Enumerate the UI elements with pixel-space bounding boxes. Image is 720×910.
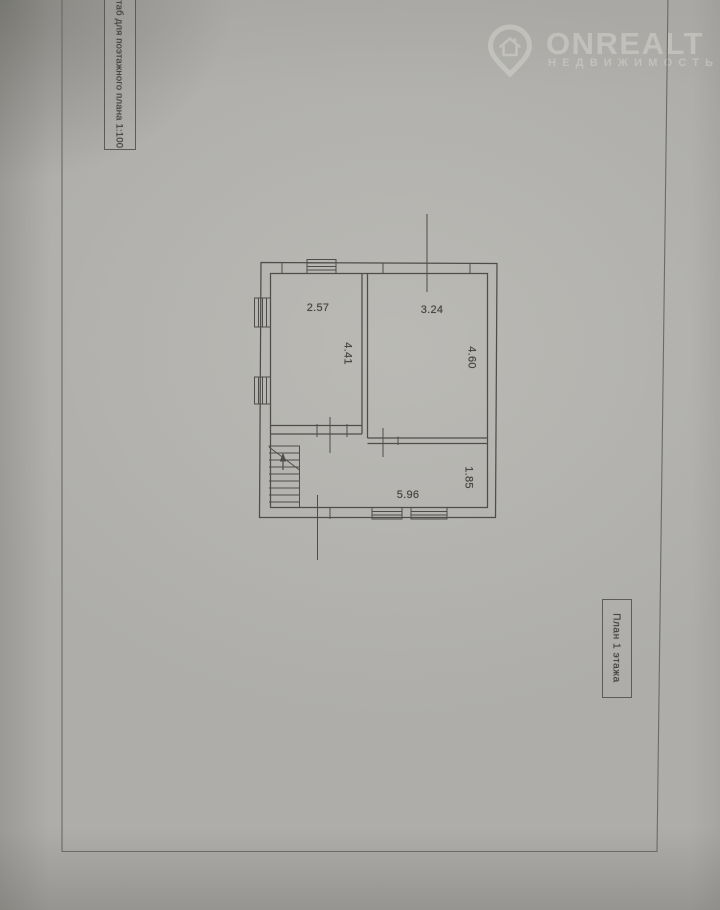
scale-label: Масштаб для поэтажного плана 1:100 — [114, 0, 125, 149]
floorplan-document-photo: ONREALT НЕДВИЖИМОСТЬ — [0, 0, 720, 910]
dim-room-left-width: 2.57 — [305, 302, 331, 315]
dim-hall-depth: 1.85 — [462, 464, 475, 490]
interior-walls — [271, 274, 488, 444]
dim-room-right-width: 3.24 — [419, 304, 445, 317]
stairs — [269, 446, 301, 508]
dim-hall-width: 5.96 — [395, 489, 421, 502]
dim-room-right-depth: 4.60 — [465, 344, 478, 370]
windows — [255, 260, 448, 520]
plan-title-label: План 1 этажа — [611, 602, 622, 694]
document-frame — [62, 0, 668, 852]
dim-room-left-depth: 4.41 — [341, 341, 354, 367]
